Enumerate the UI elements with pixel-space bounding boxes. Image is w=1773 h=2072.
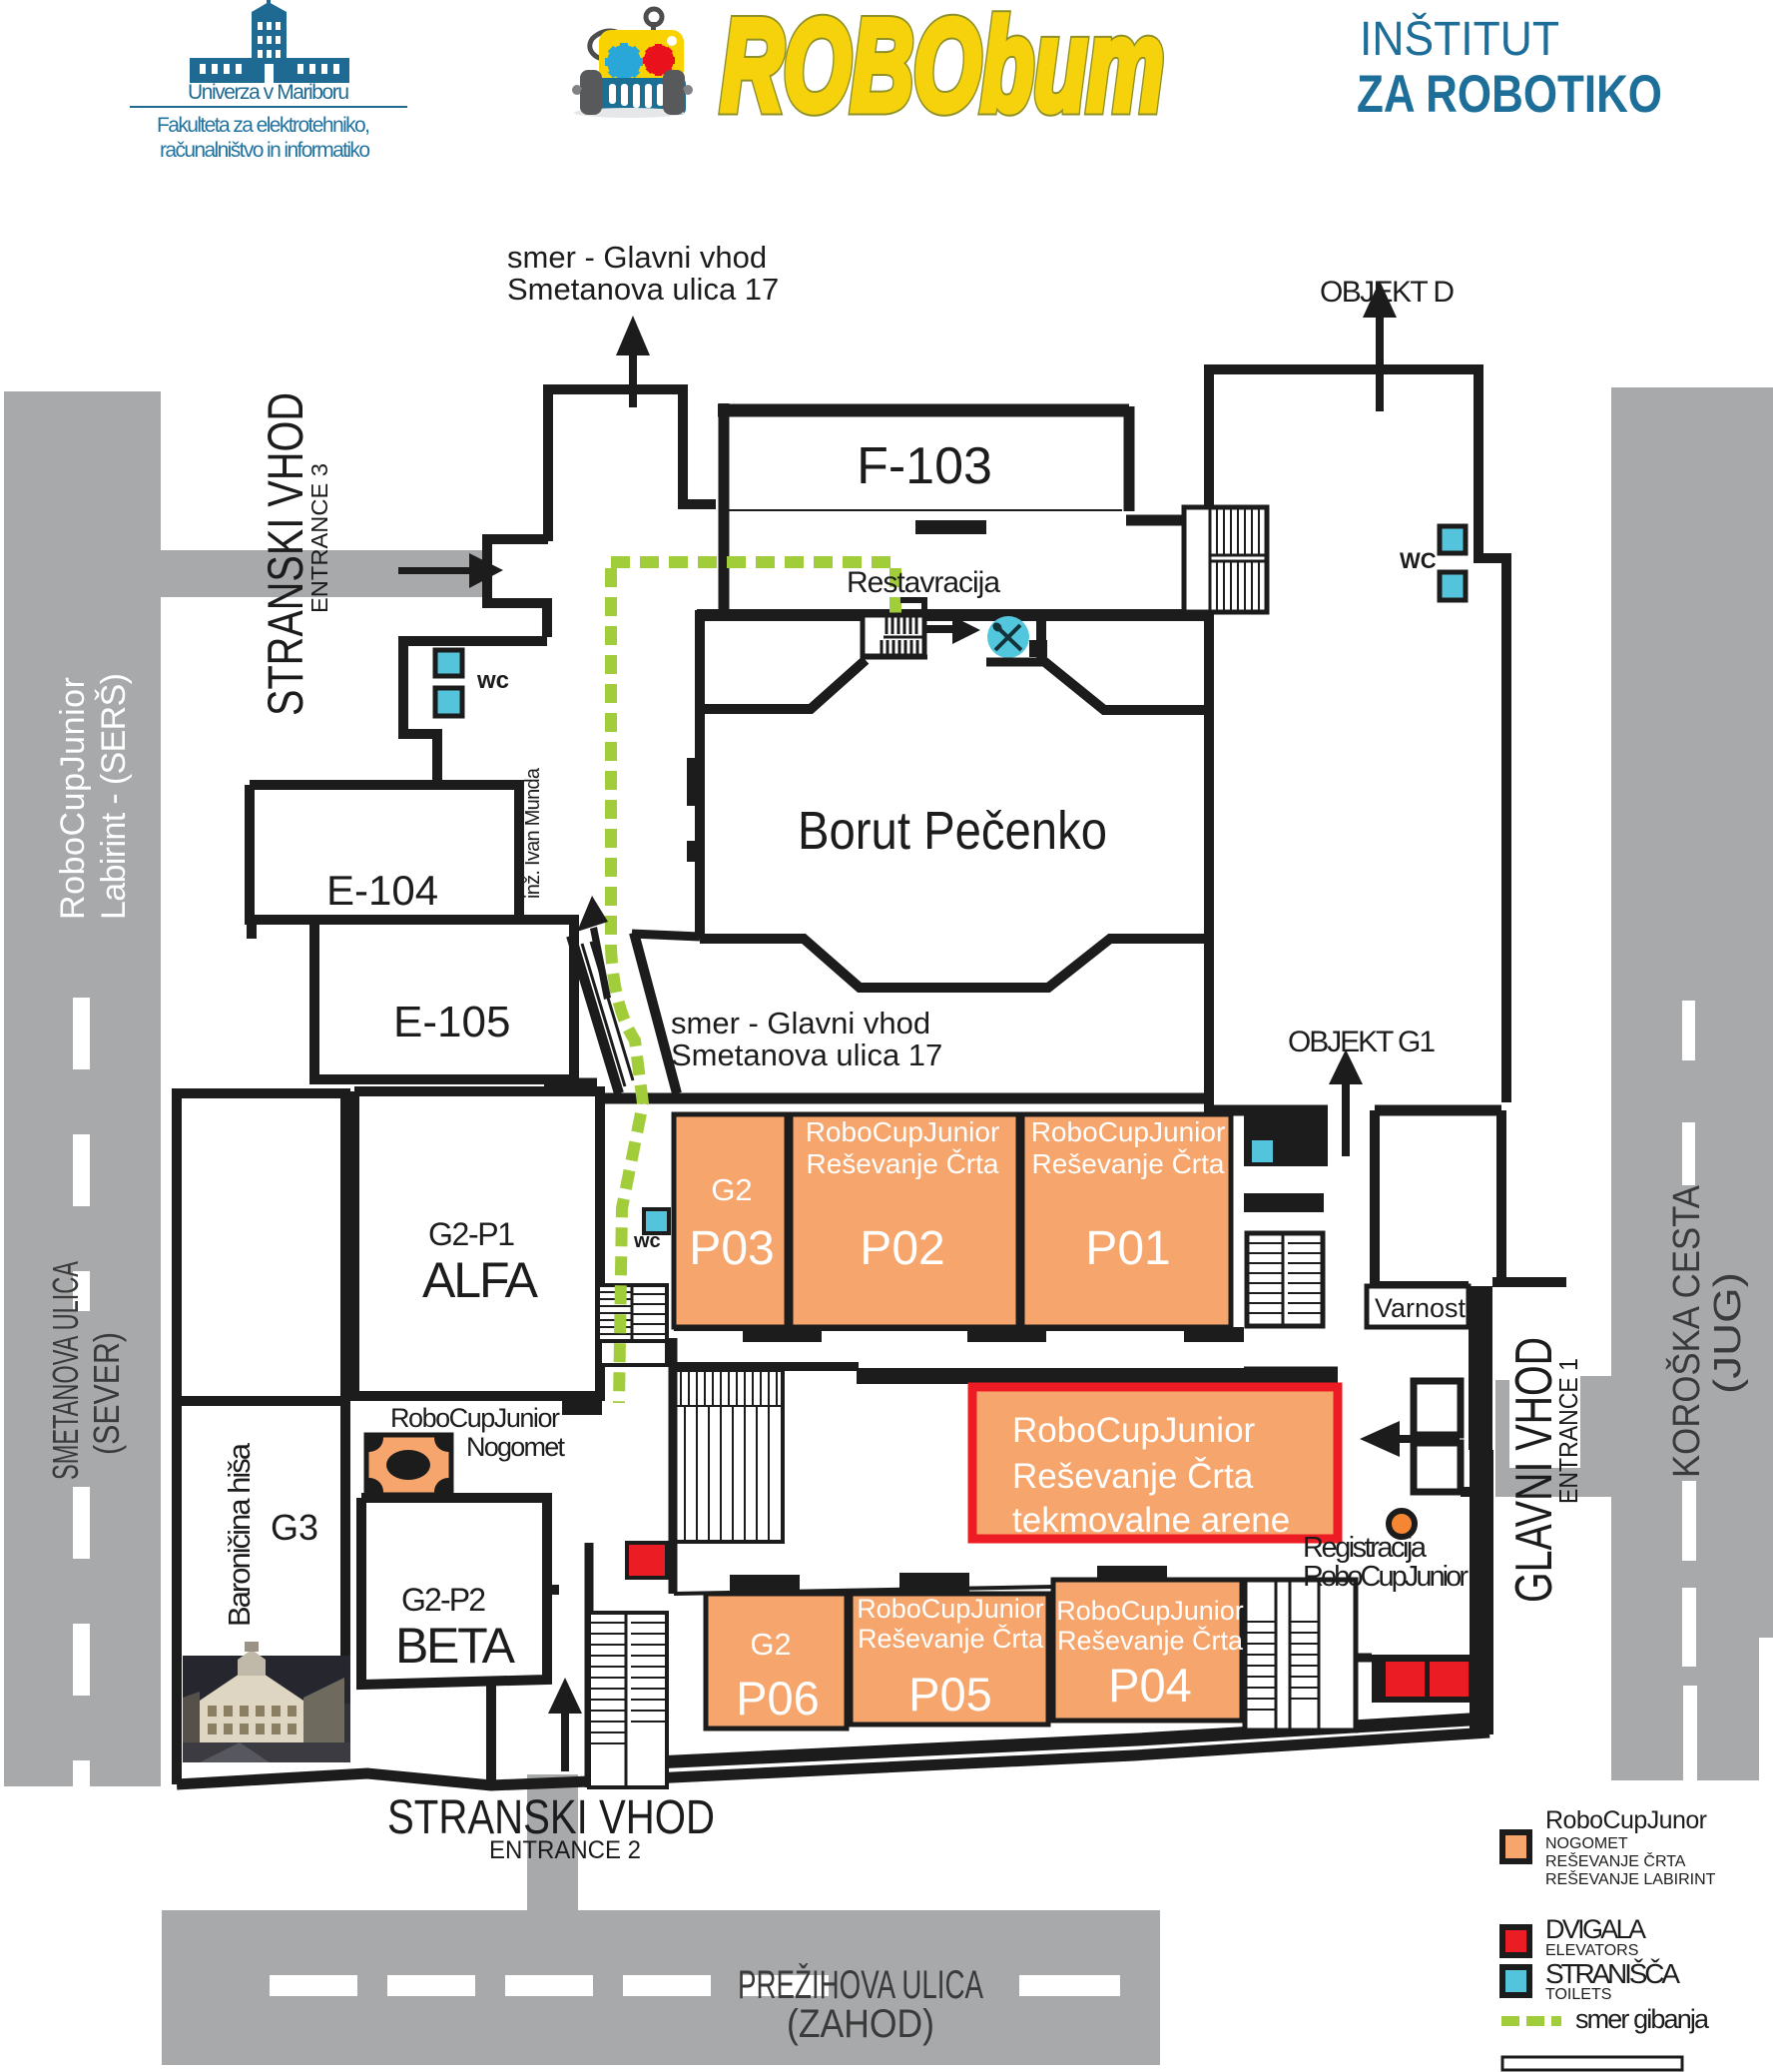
- svg-text:ELEVATORS: ELEVATORS: [1545, 1942, 1638, 1959]
- svg-text:Reševanje Črta: Reševanje Črta: [1057, 1625, 1244, 1656]
- svg-text:Varnost: Varnost: [1375, 1293, 1467, 1323]
- svg-text:smer gibanja: smer gibanja: [1575, 2004, 1710, 2034]
- svg-text:P05: P05: [908, 1668, 992, 1721]
- svg-text:G2: G2: [711, 1172, 752, 1207]
- svg-text:Fakulteta za elektrotehniko,: Fakulteta za elektrotehniko,: [157, 114, 370, 137]
- svg-text:smer - Glavni vhod: smer - Glavni vhod: [671, 1006, 930, 1040]
- svg-text:Nogomet: Nogomet: [466, 1432, 565, 1462]
- svg-text:(ZAHOD): (ZAHOD): [787, 2002, 934, 2046]
- svg-text:NOGOMET: NOGOMET: [1545, 1835, 1628, 1852]
- svg-text:P03: P03: [689, 1222, 774, 1275]
- svg-text:OBJEKT D: OBJEKT D: [1320, 276, 1455, 309]
- svg-text:Reševanje Črta: Reševanje Črta: [858, 1623, 1044, 1654]
- svg-text:KOROŠKA CESTA: KOROŠKA CESTA: [1664, 1184, 1708, 1478]
- svg-text:G2: G2: [750, 1627, 791, 1662]
- svg-text:INŠTITUT: INŠTITUT: [1360, 12, 1559, 66]
- svg-text:Restavracija: Restavracija: [847, 566, 1000, 599]
- svg-text:G3: G3: [271, 1507, 318, 1548]
- svg-text:E-104: E-104: [326, 867, 438, 914]
- svg-text:E-105: E-105: [393, 998, 510, 1046]
- svg-text:TOILETS: TOILETS: [1545, 1986, 1611, 2003]
- svg-text:Registracija: Registracija: [1303, 1532, 1428, 1564]
- svg-text:F-103: F-103: [857, 437, 992, 495]
- svg-text:PREŽIHOVA ULICA: PREŽIHOVA ULICA: [738, 1962, 983, 2007]
- svg-text:inž. Ivan Munda: inž. Ivan Munda: [522, 767, 544, 899]
- svg-text:ROBObum: ROBObum: [721, 0, 1164, 138]
- svg-text:OBJEKT G1: OBJEKT G1: [1288, 1026, 1436, 1058]
- svg-text:tekmovalne arene: tekmovalne arene: [1012, 1501, 1290, 1540]
- svg-text:(SEVER): (SEVER): [86, 1332, 127, 1455]
- svg-text:ENTRANCE 3: ENTRANCE 3: [306, 463, 332, 613]
- svg-text:STRANIŠČA: STRANIŠČA: [1545, 1958, 1680, 1989]
- svg-text:(JUG): (JUG): [1707, 1272, 1749, 1394]
- svg-text:smer - Glavni vhod: smer - Glavni vhod: [507, 240, 767, 275]
- svg-text:RoboCupJunior: RoboCupJunior: [390, 1403, 560, 1433]
- svg-text:wc: wc: [633, 1230, 661, 1252]
- svg-text:Reševanje Črta: Reševanje Črta: [807, 1148, 999, 1179]
- svg-text:P01: P01: [1085, 1222, 1170, 1275]
- svg-text:G2-P1: G2-P1: [428, 1216, 515, 1252]
- svg-text:RoboCupJunior: RoboCupJunior: [1303, 1561, 1469, 1593]
- svg-text:Smetanova ulica 17: Smetanova ulica 17: [507, 272, 779, 307]
- svg-text:ENTRANCE 2: ENTRANCE 2: [489, 1836, 641, 1864]
- svg-text:ALFA: ALFA: [422, 1252, 539, 1308]
- svg-text:Reševanje Črta: Reševanje Črta: [1012, 1457, 1254, 1496]
- svg-text:DVIGALA: DVIGALA: [1545, 1914, 1646, 1944]
- svg-text:BETA: BETA: [395, 1618, 516, 1674]
- svg-text:wc: wc: [476, 667, 509, 694]
- svg-text:Smetanova ulica 17: Smetanova ulica 17: [671, 1037, 942, 1072]
- svg-text:P06: P06: [736, 1672, 820, 1725]
- svg-text:SMETANOVA ULICA: SMETANOVA ULICA: [45, 1261, 86, 1480]
- svg-text:REŠEVANJE ČRTA: REŠEVANJE ČRTA: [1545, 1851, 1686, 1870]
- svg-text:RoboCupJunior: RoboCupJunior: [1012, 1411, 1256, 1450]
- svg-text:G2-P2: G2-P2: [401, 1582, 486, 1618]
- svg-text:RoboCupJunior: RoboCupJunior: [1056, 1596, 1244, 1626]
- svg-text:Labirint - (SERŠ): Labirint - (SERŠ): [95, 673, 133, 920]
- svg-text:ZA ROBOTIKO: ZA ROBOTIKO: [1357, 65, 1662, 124]
- svg-text:Reševanje Črta: Reševanje Črta: [1032, 1148, 1225, 1179]
- svg-text:RoboCupJunior: RoboCupJunior: [857, 1594, 1044, 1624]
- svg-text:ENTRANCE 1: ENTRANCE 1: [1553, 1358, 1583, 1504]
- svg-text:Baroničina hiša: Baroničina hiša: [222, 1442, 257, 1627]
- svg-text:Borut Pečenko: Borut Pečenko: [798, 801, 1107, 861]
- svg-text:Univerza v Mariboru: Univerza v Mariboru: [188, 81, 349, 104]
- svg-text:WC: WC: [1400, 548, 1437, 573]
- svg-text:STRANSKI VHOD: STRANSKI VHOD: [258, 392, 313, 716]
- svg-text:P04: P04: [1108, 1659, 1192, 1712]
- svg-text:RoboCupJunior: RoboCupJunior: [1031, 1116, 1226, 1147]
- svg-text:P02: P02: [860, 1222, 944, 1275]
- svg-text:RoboCupJunior: RoboCupJunior: [806, 1116, 1000, 1147]
- svg-text:RoboCupJunor: RoboCupJunor: [1545, 1806, 1707, 1834]
- svg-text:RoboCupJunior: RoboCupJunior: [54, 677, 92, 920]
- svg-text:računalništvo in informatiko: računalništvo in informatiko: [160, 139, 370, 162]
- svg-text:REŠEVANJE LABIRINT: REŠEVANJE LABIRINT: [1545, 1869, 1716, 1888]
